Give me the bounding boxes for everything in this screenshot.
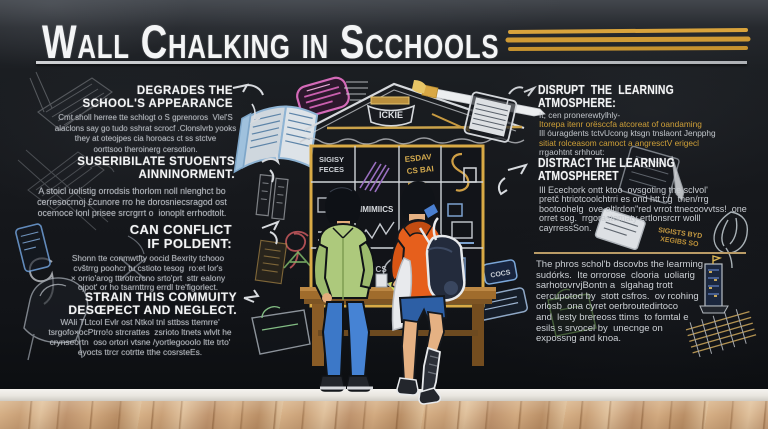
svg-text:IMIMIICS: IMIMIICS (360, 205, 394, 214)
svg-text:ICKIE: ICKIE (379, 110, 403, 120)
svg-text:SIGISY: SIGISY (319, 155, 344, 164)
svg-text:FECES: FECES (319, 165, 344, 174)
